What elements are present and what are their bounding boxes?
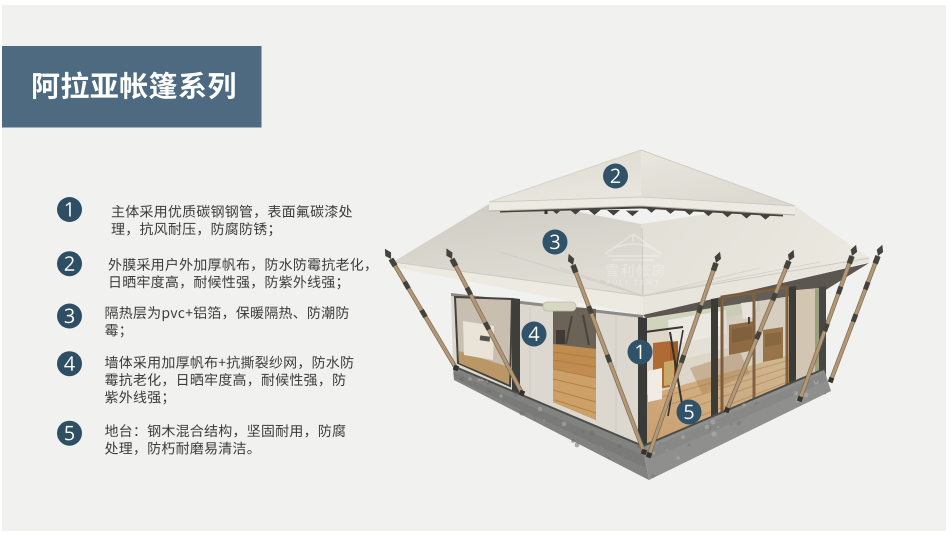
svg-text:XULI TENT: XULI TENT <box>605 280 660 287</box>
